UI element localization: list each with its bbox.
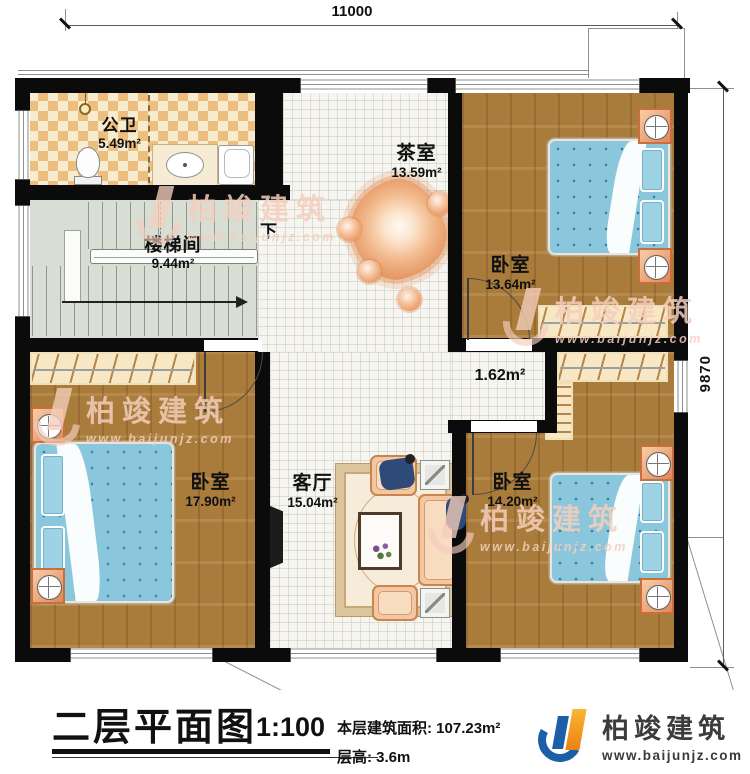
room-label-living-room: 客厅 15.04m² — [260, 473, 365, 511]
room-area: 5.49m² — [72, 136, 167, 152]
window-tea-room — [300, 78, 428, 93]
plan-info: 本层建筑面积: 107.23m² 层高: 3.6m — [337, 714, 500, 773]
room-name: 卧室 — [460, 472, 565, 494]
bed — [552, 475, 668, 581]
tv-icon — [268, 505, 283, 569]
eave-line — [18, 70, 645, 71]
room-label-bedroom-br: 卧室 14.20m² — [460, 472, 565, 510]
wall-bathroom-bottom — [15, 185, 290, 200]
door-opening-bedroom-br — [471, 421, 537, 432]
dimension-line-top — [65, 25, 677, 26]
tea-stool — [358, 260, 381, 283]
company-logo-icon — [538, 706, 594, 764]
wardrobe — [538, 305, 668, 338]
company-name: 柏竣建筑 — [602, 707, 743, 746]
armchair — [372, 585, 418, 621]
title-block: 二层平面图 1:100 本层建筑面积: 107.23m² 层高: 3.6m 柏竣… — [0, 690, 750, 774]
title-underline-thin — [52, 757, 378, 758]
side-table — [420, 460, 450, 490]
room-label-bathroom: 公卫 5.49m² — [72, 116, 167, 152]
room-label-bedroom-bl: 卧室 17.90m² — [158, 472, 263, 510]
room-area: 14.20m² — [460, 494, 565, 510]
roof-line — [687, 540, 737, 700]
nightstand — [640, 445, 674, 481]
sink-icon — [166, 152, 204, 178]
coffee-table — [358, 512, 402, 570]
floor-height-row: 层高: 3.6m — [337, 743, 500, 772]
pillow — [640, 531, 664, 573]
floor-area-row: 本层建筑面积: 107.23m² — [337, 714, 500, 743]
dimension-width: 11000 — [312, 3, 392, 20]
wardrobe — [30, 352, 196, 385]
wardrobe — [557, 352, 668, 382]
room-name: 卧室 — [158, 472, 263, 494]
plan-scale: 1:100 — [256, 712, 325, 743]
window-stairwell — [15, 205, 30, 317]
stair-direction-arrow — [236, 296, 248, 308]
nightstand — [640, 578, 674, 614]
door-opening-bedroom-tr — [466, 339, 532, 351]
door-opening-bedroom-bl — [204, 340, 262, 351]
wall-tea-bedroom — [448, 78, 462, 352]
eave-line — [18, 74, 645, 75]
nightstand — [31, 407, 65, 443]
window-living-room — [290, 648, 437, 662]
company-logo: 柏竣建筑 www.baijunjz.com — [538, 706, 743, 764]
wall-living-bedroom-br — [452, 433, 466, 648]
pillow — [640, 481, 664, 523]
window-corridor — [674, 360, 688, 413]
floor-plan-canvas: 11000 9870 — [0, 0, 750, 774]
dimension-line-right — [723, 88, 724, 668]
dimension-extension — [65, 9, 66, 31]
floor-area-label: 本层建筑面积: — [337, 720, 432, 737]
room-name: 公卫 — [72, 116, 167, 136]
room-label-tea-room: 茶室 13.59m² — [364, 143, 469, 181]
room-name: 茶室 — [364, 143, 469, 165]
room-name: 客厅 — [260, 473, 365, 495]
floor-area-value: 107.23m² — [436, 720, 500, 737]
room-name: 楼梯间 — [118, 235, 228, 256]
room-area: 1.62m² — [452, 367, 548, 386]
room-area: 13.59m² — [364, 165, 469, 181]
floor-height-value: 3.6m — [376, 749, 410, 766]
bed-sheet — [602, 475, 645, 581]
floor-height-label: 层高: — [337, 749, 372, 766]
room-area: 17.90m² — [158, 494, 263, 510]
company-website: www.baijunjz.com — [602, 748, 743, 763]
pillow — [41, 454, 65, 516]
window-bedroom-tr — [455, 78, 640, 93]
nightstand — [638, 108, 672, 144]
room-label-bedroom-tr: 卧室 13.64m² — [458, 255, 563, 293]
room-name: 卧室 — [458, 255, 563, 277]
room-area: 13.64m² — [458, 277, 563, 293]
stair-down-label: 下 — [260, 217, 277, 242]
pillow — [640, 148, 664, 192]
side-table — [420, 588, 450, 618]
plan-title: 二层平面图 — [52, 696, 257, 751]
pillow — [640, 200, 664, 244]
tea-stool — [338, 218, 361, 241]
nightstand — [638, 248, 672, 284]
room-area: 9.44m² — [118, 256, 228, 272]
stair-void — [64, 230, 81, 303]
door-leaf-bedroom-bl — [204, 352, 206, 412]
wall-bathroom-right — [255, 91, 283, 200]
ceiling-lamp-icon — [79, 103, 91, 115]
person-figure — [378, 457, 416, 491]
title-underline-thick — [52, 749, 330, 754]
window-bedroom-br — [500, 648, 640, 662]
room-label-corridor: 1.62m² — [452, 367, 548, 386]
stair-direction-line — [62, 301, 238, 303]
nightstand — [31, 568, 65, 604]
window-bedroom-bl — [70, 648, 213, 662]
wall-corridor-right — [545, 352, 557, 420]
room-area: 15.04m² — [260, 495, 365, 511]
corridor-floor — [452, 352, 545, 420]
bed — [550, 141, 668, 253]
window-bathroom — [15, 110, 30, 180]
tea-stool — [398, 288, 421, 311]
dimension-height: 9870 — [697, 355, 714, 392]
washing-machine-icon — [218, 145, 254, 185]
roof-overhang-outline — [588, 28, 685, 80]
room-label-stairwell: 楼梯间 9.44m² — [118, 235, 228, 272]
